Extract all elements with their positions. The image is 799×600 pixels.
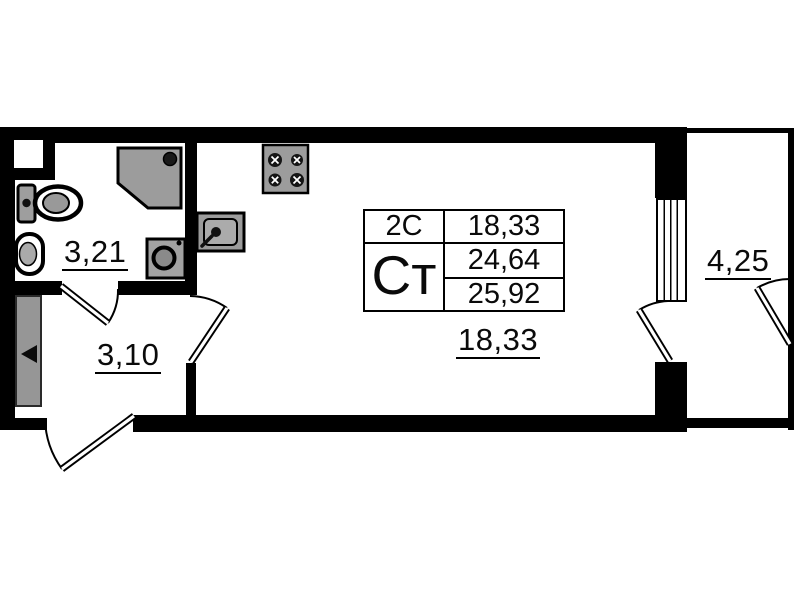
balcony-area-label: 4,25 bbox=[705, 246, 771, 280]
area-total-cell: 25,92 bbox=[445, 279, 563, 310]
hallway-area-label: 3,10 bbox=[95, 340, 161, 374]
bathroom-area-label: 3,21 bbox=[62, 237, 128, 271]
wardrobe-icon bbox=[16, 296, 41, 406]
shower-icon bbox=[118, 148, 181, 208]
living-room-area-label: 18,33 bbox=[456, 325, 540, 359]
washing-machine-icon bbox=[147, 239, 185, 278]
living-room-door bbox=[190, 296, 227, 362]
entrance-door bbox=[45, 416, 134, 469]
bathroom-sink-icon bbox=[16, 234, 43, 274]
unit-type-code-cell: 2С bbox=[365, 211, 445, 244]
area-no-balcony-cell: 24,64 bbox=[445, 244, 563, 279]
unit-info-table: 2С Ст 18,33 24,64 25,92 bbox=[363, 209, 565, 312]
bathroom-door bbox=[61, 286, 118, 323]
unit-label-cell: Ст bbox=[365, 244, 445, 310]
balcony-glazing-door bbox=[757, 279, 790, 344]
balcony-door bbox=[639, 301, 670, 361]
kitchen-sink-icon bbox=[197, 213, 244, 251]
floor-plan: 3,21 3,10 18,33 4,25 2С Ст 18,33 24,64 2… bbox=[0, 0, 799, 600]
toilet-icon bbox=[18, 185, 81, 222]
stove-icon bbox=[263, 145, 308, 193]
living-area-cell: 18,33 bbox=[445, 211, 563, 244]
